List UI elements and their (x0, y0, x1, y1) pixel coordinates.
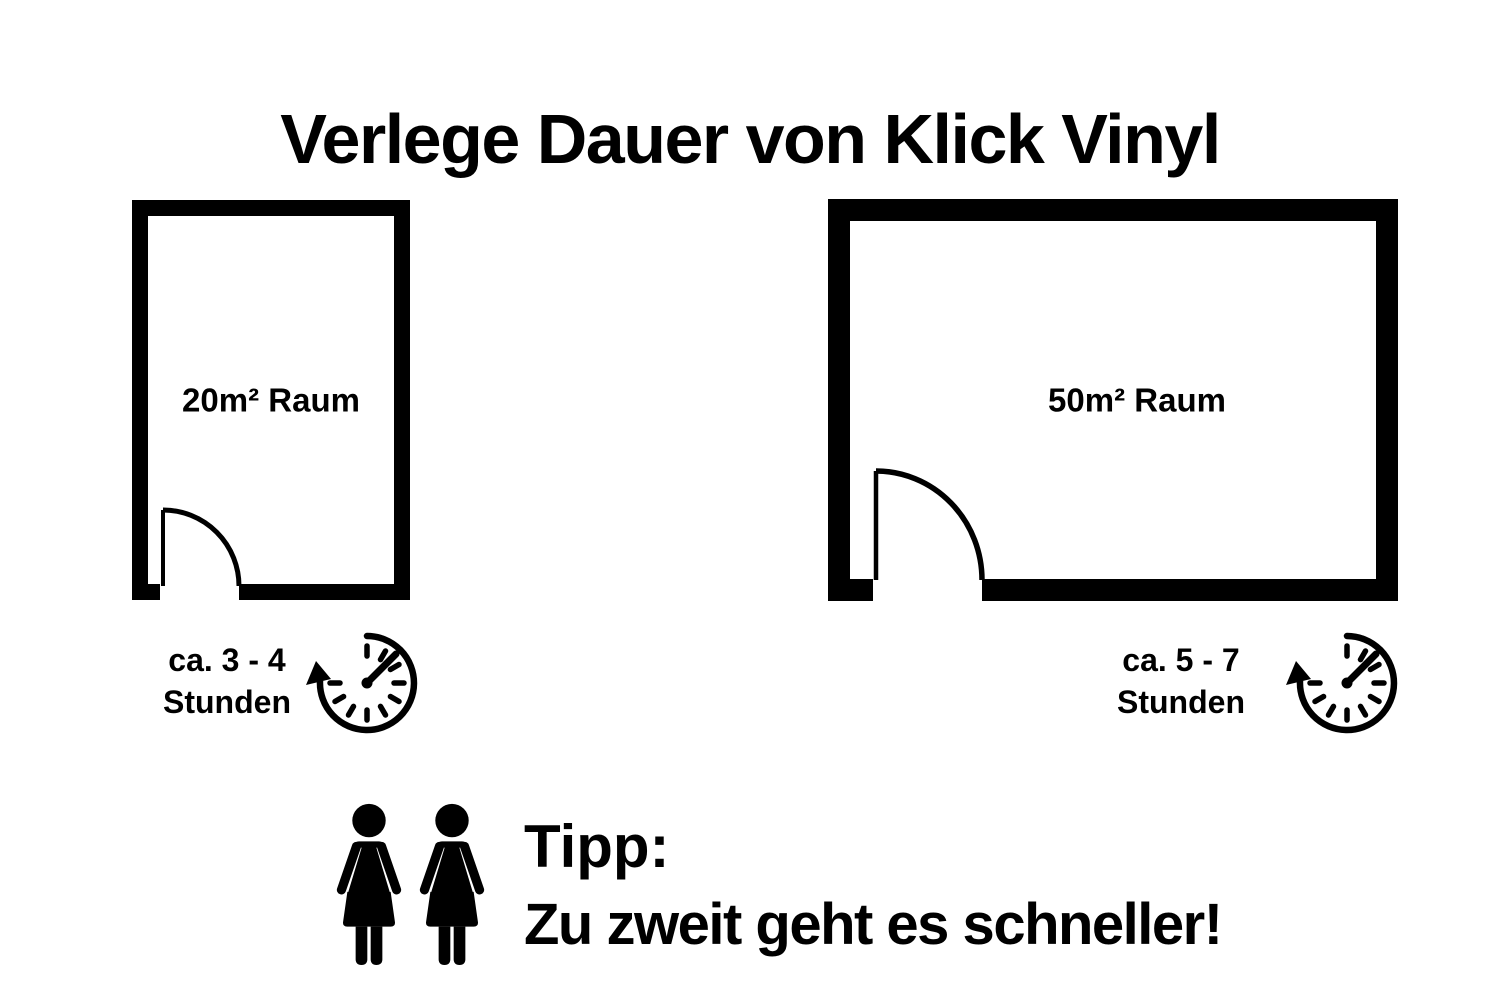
duration-large-line2: Stunden (1086, 681, 1276, 723)
two-women-icon (331, 803, 493, 970)
infographic-canvas: Verlege Dauer von Klick Vinyl 20m² Raum (0, 0, 1500, 1000)
room-small-label: 20m² Raum (132, 384, 410, 417)
door-swing-arc (876, 471, 982, 580)
room-large-label: 50m² Raum (876, 384, 1398, 417)
page-title: Verlege Dauer von Klick Vinyl (0, 104, 1500, 174)
duration-small-line2: Stunden (132, 681, 322, 723)
stopwatch-timer-icon (1284, 627, 1399, 739)
tip-text: Zu zweit geht es schneller! (524, 896, 1222, 954)
woman-icon (331, 803, 407, 970)
stopwatch-timer-icon (304, 627, 419, 739)
duration-small-room: ca. 3 - 4 Stunden (132, 639, 322, 723)
woman-icon (414, 803, 490, 970)
room-small: 20m² Raum (132, 200, 410, 600)
duration-large-line1: ca. 5 - 7 (1086, 639, 1276, 681)
room-large: 50m² Raum (828, 199, 1398, 601)
door-swing-arc (163, 510, 239, 586)
duration-small-line1: ca. 3 - 4 (132, 639, 322, 681)
tip-heading: Tipp: (524, 817, 670, 877)
duration-large-room: ca. 5 - 7 Stunden (1086, 639, 1276, 723)
